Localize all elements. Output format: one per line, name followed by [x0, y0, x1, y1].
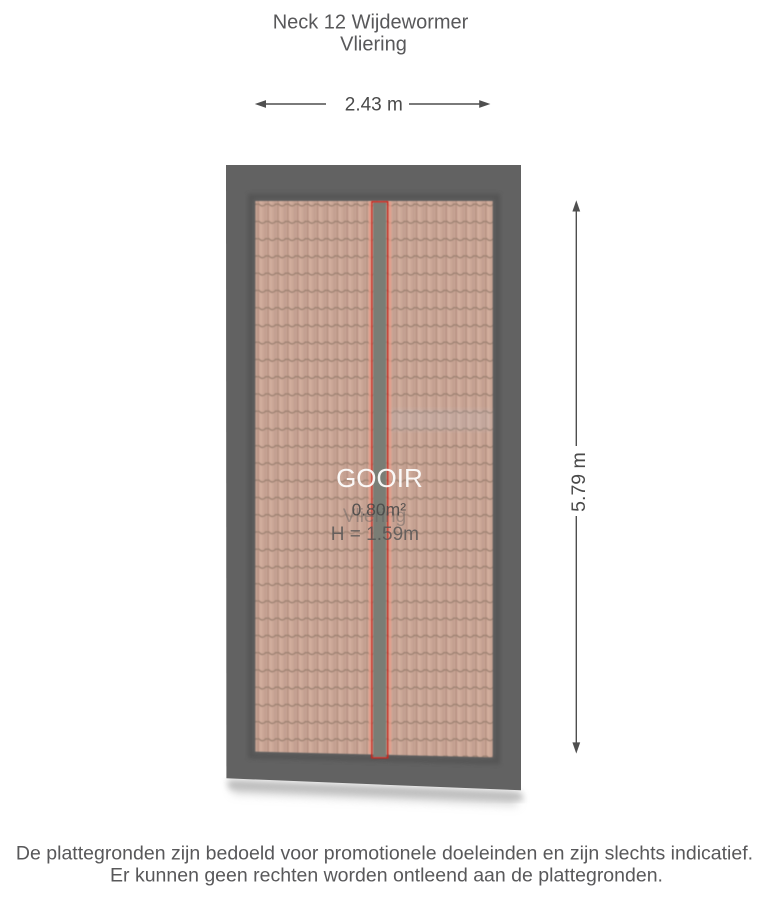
svg-text:Neck 12 Wijdewormer: Neck 12 Wijdewormer — [273, 12, 469, 34]
svg-text:GOOIR: GOOIR — [336, 463, 423, 493]
svg-text:2.43 m: 2.43 m — [345, 95, 403, 116]
svg-text:5.79 m: 5.79 m — [568, 452, 590, 512]
svg-text:De plattegronden zijn bedoeld: De plattegronden zijn bedoeld voor promo… — [16, 842, 753, 864]
svg-text:H = 1.59m: H = 1.59m — [331, 524, 419, 545]
svg-text:Vliering: Vliering — [340, 34, 407, 56]
svg-text:0.80m²: 0.80m² — [352, 500, 407, 520]
svg-text:Er kunnen geen rechten worden: Er kunnen geen rechten worden ontleend a… — [110, 865, 663, 887]
